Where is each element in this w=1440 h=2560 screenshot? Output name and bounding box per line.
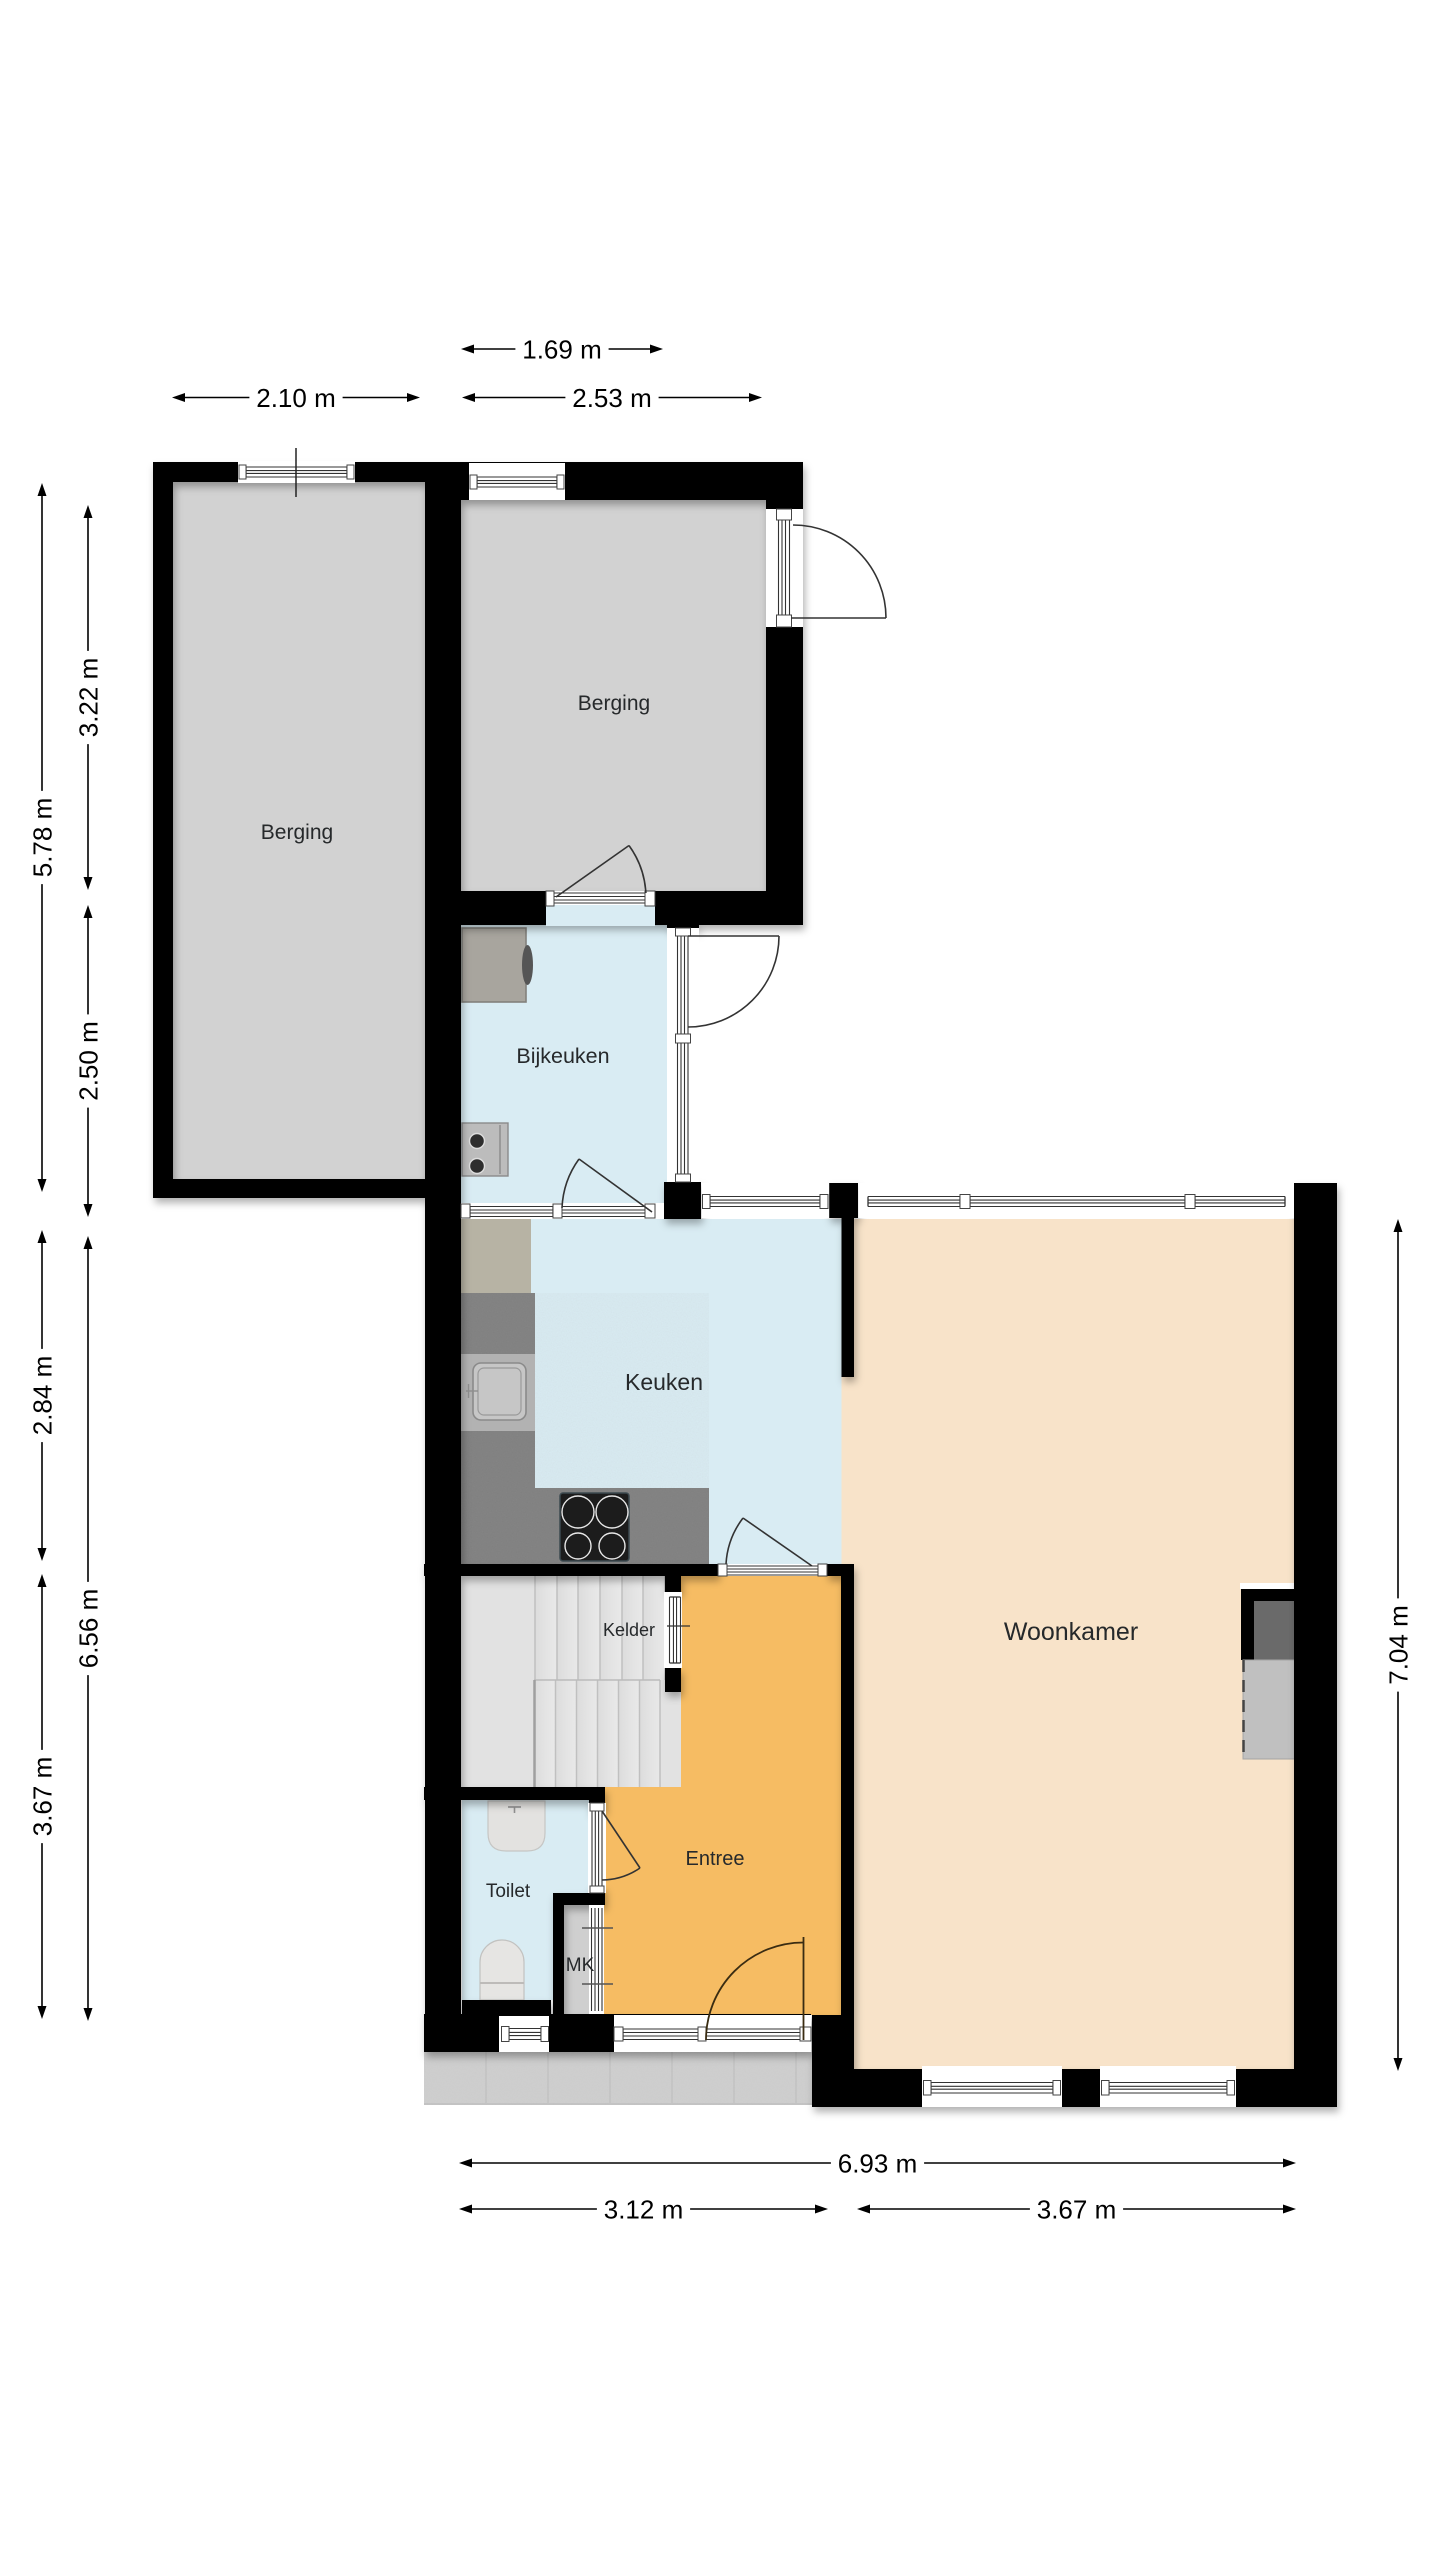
svg-text:2.10 m: 2.10 m	[256, 383, 336, 413]
svg-text:3.12 m: 3.12 m	[604, 2195, 684, 2225]
svg-text:Woonkamer: Woonkamer	[1004, 1618, 1138, 1646]
svg-text:1.69 m: 1.69 m	[522, 335, 602, 365]
svg-text:2.50 m: 2.50 m	[74, 1021, 104, 1101]
svg-text:2.84 m: 2.84 m	[28, 1356, 58, 1436]
svg-text:7.04 m: 7.04 m	[1384, 1605, 1414, 1685]
svg-text:Toilet: Toilet	[486, 1881, 531, 1902]
svg-text:6.56 m: 6.56 m	[74, 1589, 104, 1669]
svg-text:Keuken: Keuken	[625, 1369, 703, 1395]
svg-text:3.67 m: 3.67 m	[28, 1757, 58, 1837]
svg-text:Berging: Berging	[578, 692, 650, 715]
svg-text:MK: MK	[566, 1955, 595, 1976]
svg-text:5.78 m: 5.78 m	[28, 798, 58, 878]
svg-text:6.93 m: 6.93 m	[838, 2149, 918, 2179]
svg-text:3.67 m: 3.67 m	[1037, 2195, 1117, 2225]
svg-text:3.22 m: 3.22 m	[74, 658, 104, 738]
svg-text:Bijkeuken: Bijkeuken	[516, 1044, 609, 1068]
svg-text:2.53 m: 2.53 m	[572, 383, 652, 413]
svg-text:Entree: Entree	[686, 1848, 745, 1870]
svg-text:Kelder: Kelder	[603, 1620, 655, 1640]
svg-text:Berging: Berging	[261, 821, 333, 844]
